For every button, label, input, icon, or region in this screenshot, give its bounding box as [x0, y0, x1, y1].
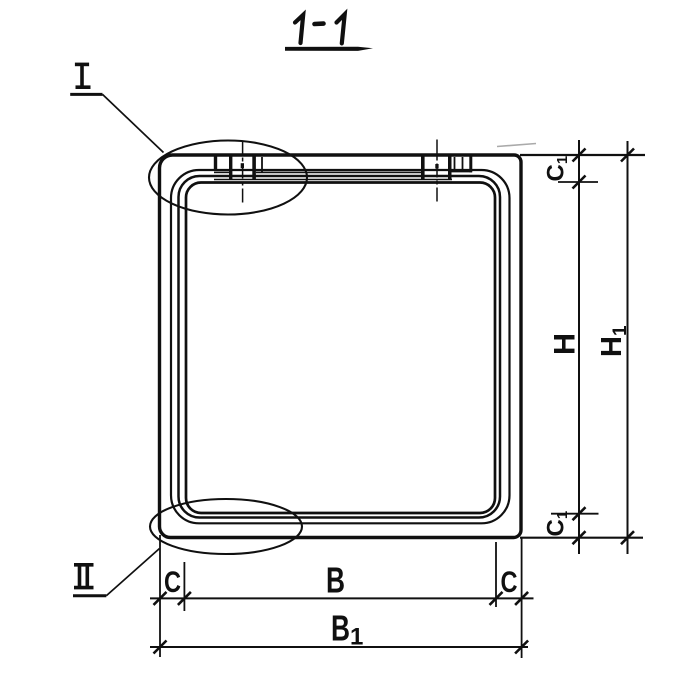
- svg-text:B: B: [326, 560, 345, 601]
- svg-text:H: H: [549, 333, 582, 355]
- svg-text:H1: H1: [596, 325, 631, 357]
- svg-text:C1: C1: [543, 156, 572, 182]
- svg-text:C1: C1: [543, 511, 572, 537]
- svg-text:C: C: [501, 566, 518, 599]
- svg-text:B1: B1: [331, 608, 363, 651]
- svg-text:C: C: [164, 566, 181, 599]
